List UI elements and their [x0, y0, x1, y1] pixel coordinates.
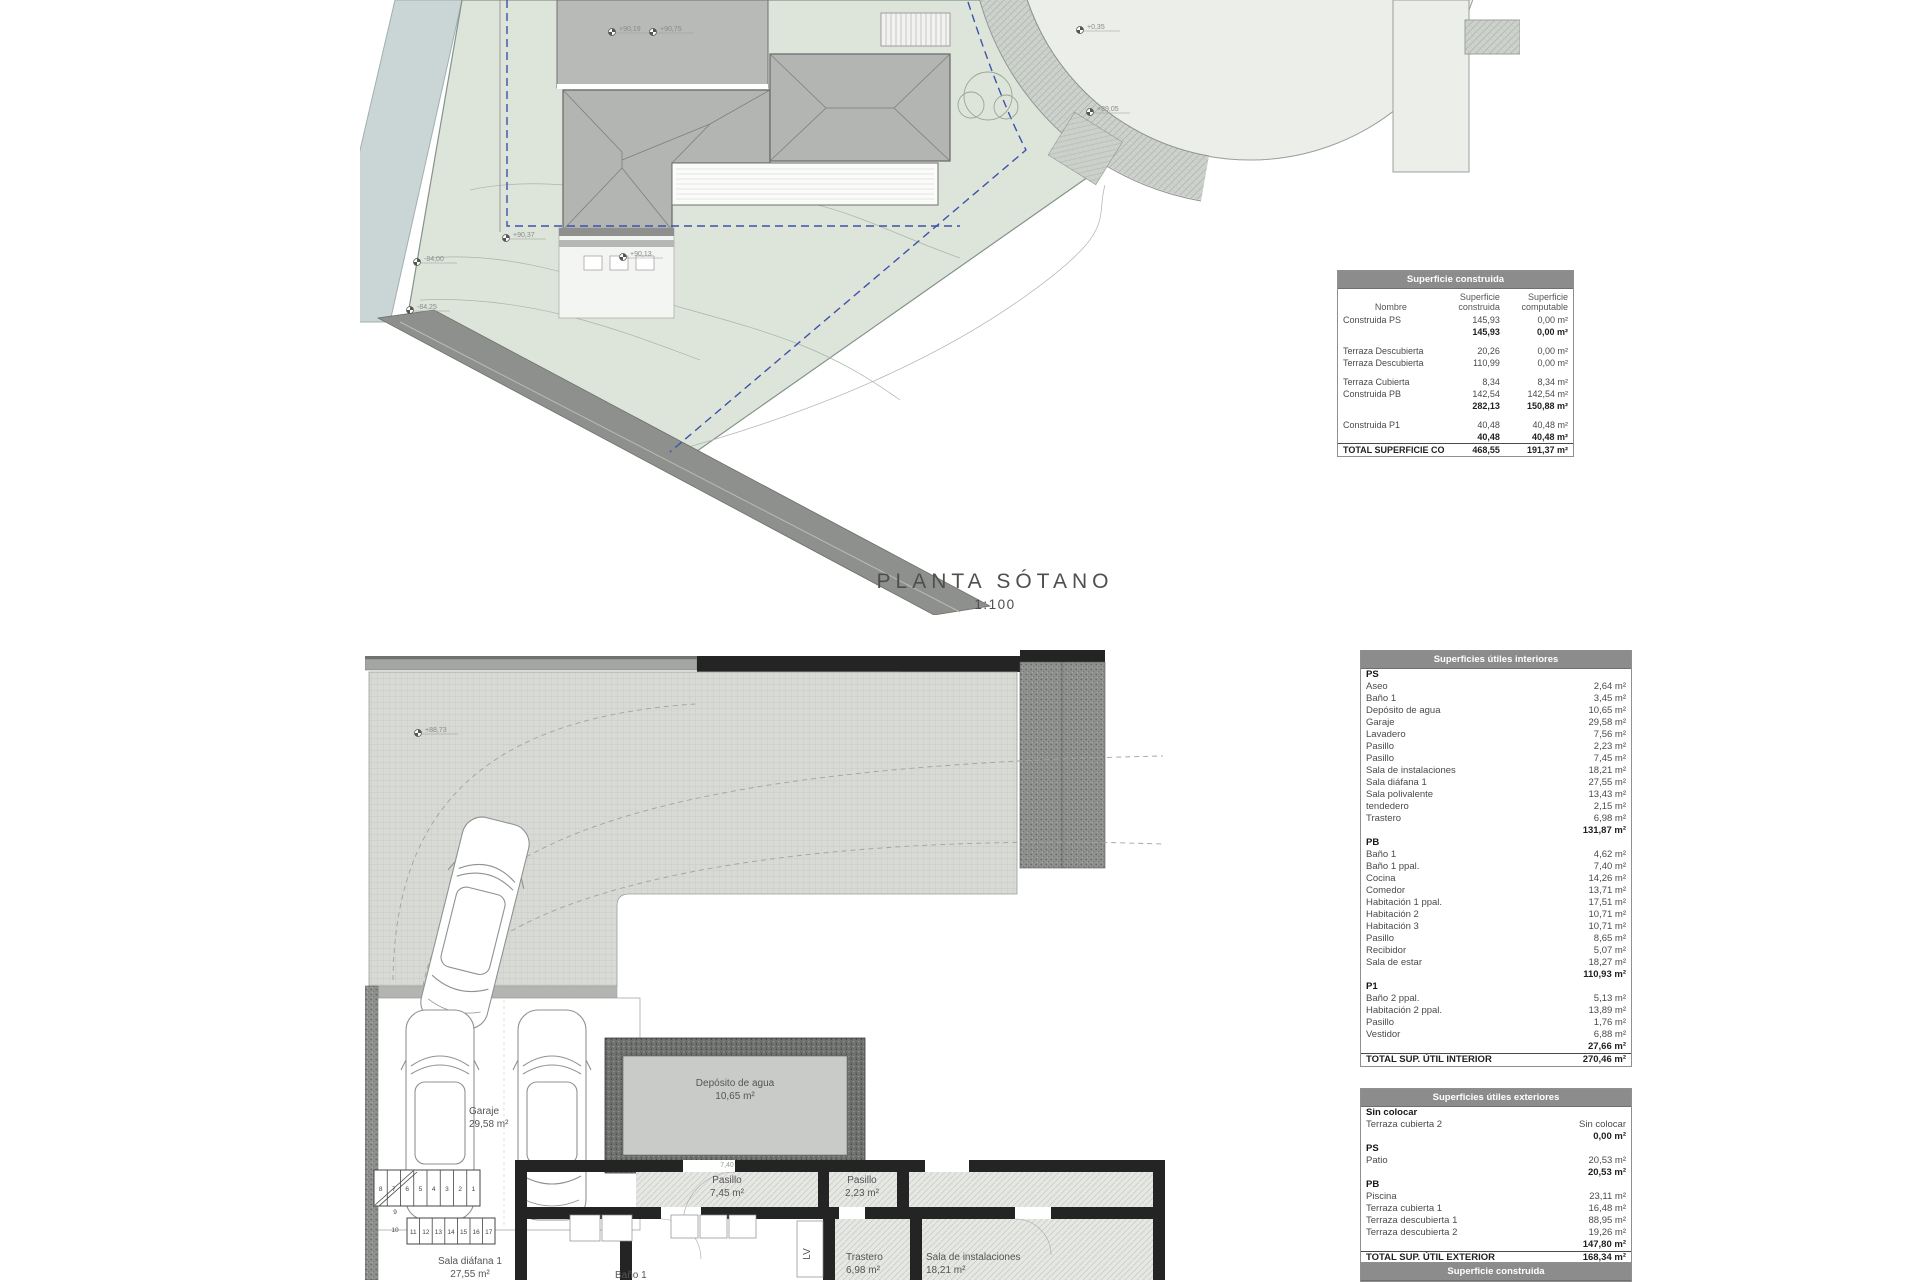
spacer-row [1338, 412, 1573, 419]
table-superficie-construida-clipped: Superficie construida [1360, 1262, 1632, 1282]
table-row: Terraza Cubierta8,348,34 m² [1338, 376, 1573, 388]
lower-terrace [559, 228, 674, 318]
table-row: Terraza descubierta 219,26 m² [1361, 1227, 1631, 1239]
superficie-construida-grid: Nombre Superficie construida Superficie … [1338, 289, 1573, 456]
col-sup-construida: Superficie construida [1444, 289, 1505, 314]
elevation-label: -84,00 [424, 256, 444, 263]
table-row: Terraza cubierta 116,48 m² [1361, 1203, 1631, 1215]
table-superficies-utiles-exteriores: Superficies útiles exteriores Sin coloca… [1360, 1088, 1632, 1265]
dimension-label: 7,40 [720, 1162, 734, 1169]
table-row: Baño 1 ppal.7,40 m² [1361, 861, 1631, 873]
table-title: Superficie construida [1338, 271, 1573, 289]
elevation-label: +90,75 [660, 26, 682, 33]
stair-number: 6 [405, 1186, 409, 1193]
table-row: Construida P140,4840,48 m² [1338, 419, 1573, 431]
pool-terrace [672, 163, 938, 205]
stair-number: 12 [422, 1229, 430, 1236]
table-title: Superficies útiles exteriores [1361, 1089, 1631, 1107]
table-row: Piscina23,11 m² [1361, 1191, 1631, 1203]
table-row: Baño 14,62 m² [1361, 849, 1631, 861]
table-row: 40,4840,48 m² [1338, 431, 1573, 444]
plan-scale: 1:100 [845, 597, 1145, 612]
table-title: Superficies útiles interiores [1361, 651, 1631, 669]
spacer-row [1338, 369, 1573, 376]
table-row: Terraza descubierta 188,95 m² [1361, 1215, 1631, 1227]
table-superficie-construida: Superficie construida Nombre Superficie … [1337, 270, 1574, 457]
table-row: Sala de instalaciones18,21 m² [1361, 765, 1631, 777]
table-row: Terraza Descubierta110,990,00 m² [1338, 357, 1573, 369]
stair-number: 15 [460, 1229, 468, 1236]
stair-number: 13 [435, 1229, 443, 1236]
stair-number: 7 [392, 1186, 396, 1193]
table-row: Terraza Descubierta20,260,00 m² [1338, 345, 1573, 357]
room-label: Baño 1 [615, 1270, 647, 1280]
table-row: 145,930,00 m² [1338, 326, 1573, 338]
table-row: Aseo2,64 m² [1361, 681, 1631, 693]
table-row: Cocina14,26 m² [1361, 873, 1631, 885]
retaining-wall-stipple [1020, 662, 1105, 868]
fixtures [570, 1215, 823, 1277]
section-header-row: P1 [1361, 981, 1631, 993]
stair-number: 17 [485, 1229, 493, 1236]
table-row: Sala de estar18,27 m² [1361, 957, 1631, 969]
table-row: Pasillo2,23 m² [1361, 741, 1631, 753]
table-row: Habitación 210,71 m² [1361, 909, 1631, 921]
table-row: 0,00 m² [1361, 1131, 1631, 1143]
section-header-row: Sin colocar [1361, 1107, 1631, 1119]
elevation-label: +88,73 [425, 727, 447, 734]
spacer-row [1338, 338, 1573, 345]
exteriores-grid: Sin colocarTerraza cubierta 2Sin colocar… [1361, 1107, 1631, 1264]
table-row: Habitación 2 ppal.13,89 m² [1361, 1005, 1631, 1017]
elevation-label: +90,19 [619, 26, 641, 33]
water-tank-room [605, 1038, 865, 1173]
table-row: Lavadero7,56 m² [1361, 729, 1631, 741]
table-row: Pasillo7,45 m² [1361, 753, 1631, 765]
stair-number: 2 [458, 1186, 462, 1193]
plan-title-text: PLANTA SÓTANO [845, 570, 1145, 594]
stair-number: 14 [447, 1229, 455, 1236]
stair-number: 16 [473, 1229, 481, 1236]
stair-number: 10 [391, 1227, 399, 1234]
table-row: Recibidor5,07 m² [1361, 945, 1631, 957]
table-row: Garaje29,58 m² [1361, 717, 1631, 729]
table-row: TOTAL SUPERFICIE CONSTRUIDA:468,55191,37… [1338, 444, 1573, 457]
stair-number: 8 [379, 1186, 383, 1193]
stair-number: 5 [419, 1186, 423, 1193]
wall-band-top [515, 1160, 1165, 1172]
table-row: Habitación 310,71 m² [1361, 921, 1631, 933]
stair-number: 1 [472, 1186, 476, 1193]
table-row: Pasillo1,76 m² [1361, 1017, 1631, 1029]
stair-number: 9 [393, 1209, 397, 1216]
table-row: Trastero6,98 m² [1361, 813, 1631, 825]
exterior-stairs [881, 13, 950, 46]
section-header-row: PS [1361, 1143, 1631, 1155]
table-row: Habitación 1 ppal.17,51 m² [1361, 897, 1631, 909]
col-sup-computable: Superficie computable [1505, 289, 1573, 314]
table-row: tendedero2,15 m² [1361, 801, 1631, 813]
basement-floor-plan: +88,73Garaje29,58 m²Depósito de agua10,6… [365, 648, 1165, 1280]
table-row: Baño 2 ppal.5,13 m² [1361, 993, 1631, 1005]
section-header-row: PB [1361, 1179, 1631, 1191]
table-row: Comedor13,71 m² [1361, 885, 1631, 897]
table-row: 147,80 m² [1361, 1239, 1631, 1252]
table-row: 27,66 m² [1361, 1041, 1631, 1054]
table-row: 20,53 m² [1361, 1167, 1631, 1179]
stair-number: 4 [432, 1186, 436, 1193]
column-header-row: Nombre Superficie construida Superficie … [1338, 289, 1573, 314]
elevation-label: +0,35 [1087, 24, 1105, 31]
top-wall-black [697, 656, 1065, 672]
elevation-label: +90,13 [630, 251, 652, 258]
top-wall-gray [365, 659, 697, 670]
table-row: 110,93 m² [1361, 969, 1631, 981]
table-row: Construida PS145,930,00 m² [1338, 314, 1573, 326]
table-row: 131,87 m² [1361, 825, 1631, 837]
table-row: 282,13150,88 m² [1338, 400, 1573, 412]
elevation-label: -84,25 [417, 304, 437, 311]
col-nombre: Nombre [1338, 289, 1444, 314]
washer-tag: LV [802, 1248, 813, 1260]
plan-title: PLANTA SÓTANO 1:100 [845, 570, 1145, 612]
table-row: Patio20,53 m² [1361, 1155, 1631, 1167]
table-title: Superficie construida [1361, 1263, 1631, 1281]
elevation-label: +90,37 [513, 232, 535, 239]
table-row: Depósito de agua10,65 m² [1361, 705, 1631, 717]
table-superficies-utiles-interiores: Superficies útiles interiores PSAseo2,64… [1360, 650, 1632, 1067]
table-row: Pasillo8,65 m² [1361, 933, 1631, 945]
table-row: Terraza cubierta 2Sin colocar [1361, 1119, 1631, 1131]
table-row: TOTAL SUP. ÚTIL INTERIOR270,46 m² [1361, 1054, 1631, 1067]
stair-number: 11 [410, 1229, 417, 1236]
table-row: Sala diáfana 127,55 m² [1361, 777, 1631, 789]
upper-slab [557, 0, 768, 88]
stair-number: 3 [445, 1186, 449, 1193]
table-row: Construida PB142,54142,54 m² [1338, 388, 1573, 400]
interiores-grid: PSAseo2,64 m²Baño 13,45 m²Depósito de ag… [1361, 669, 1631, 1066]
hip-roof-right [770, 54, 950, 161]
elevation-label: +89,05 [1097, 106, 1119, 113]
table-row: Baño 13,45 m² [1361, 693, 1631, 705]
table-row: Sala polivalente13,43 m² [1361, 789, 1631, 801]
section-header-row: PB [1361, 837, 1631, 849]
left-wall-stipple [365, 986, 378, 1280]
room-label: Sala diáfana 127,55 m² [438, 1256, 502, 1280]
cross-road-top-right [1393, 0, 1520, 172]
section-header-row: PS [1361, 669, 1631, 681]
table-row: Vestidor6,88 m² [1361, 1029, 1631, 1041]
